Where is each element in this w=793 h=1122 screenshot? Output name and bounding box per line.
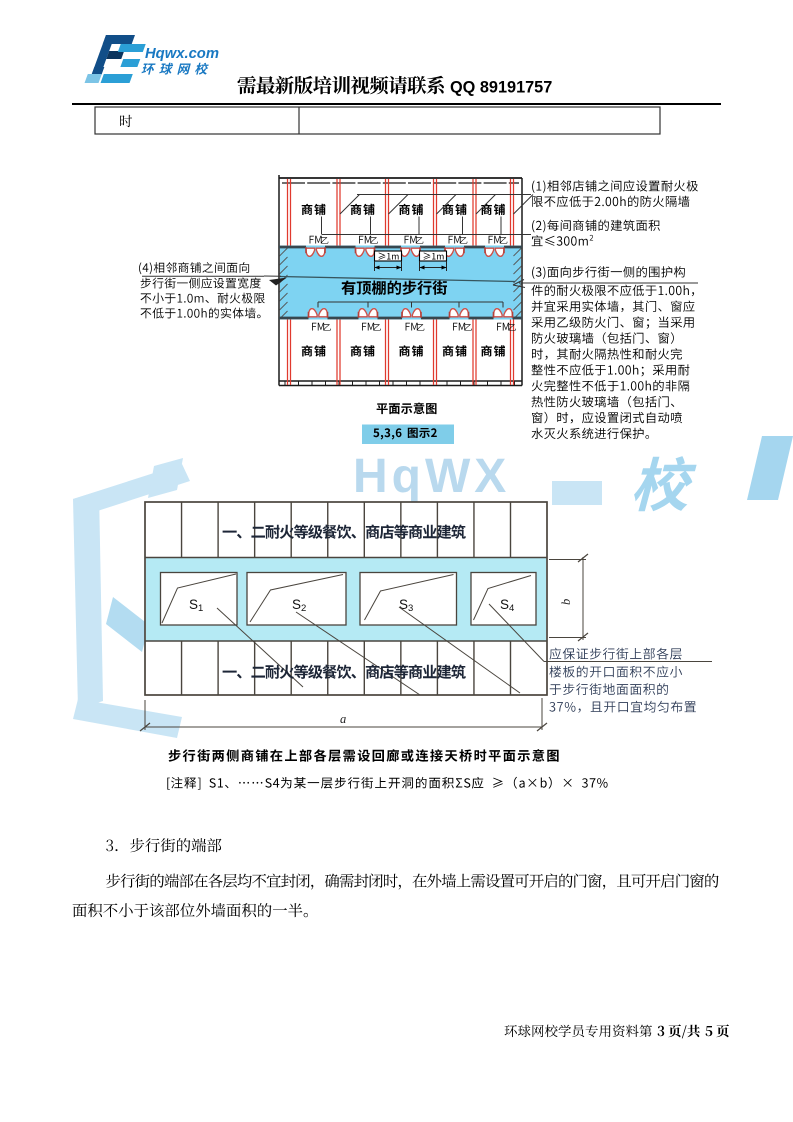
svg-text:1: 1 — [198, 603, 203, 614]
svg-text:HqWX: HqWX — [353, 450, 510, 503]
svg-text:4: 4 — [509, 603, 514, 614]
svg-text:QQ 89191757: QQ 89191757 — [450, 79, 552, 97]
svg-text:2: 2 — [301, 603, 306, 614]
svg-text:3: 3 — [408, 603, 413, 614]
svg-text:b: b — [559, 599, 573, 605]
svg-text:Hqwx.com: Hqwx.com — [145, 46, 219, 62]
svg-text:S: S — [500, 597, 509, 612]
svg-text:S: S — [189, 597, 198, 612]
svg-text:S: S — [292, 597, 301, 612]
svg-text:a: a — [340, 712, 346, 726]
